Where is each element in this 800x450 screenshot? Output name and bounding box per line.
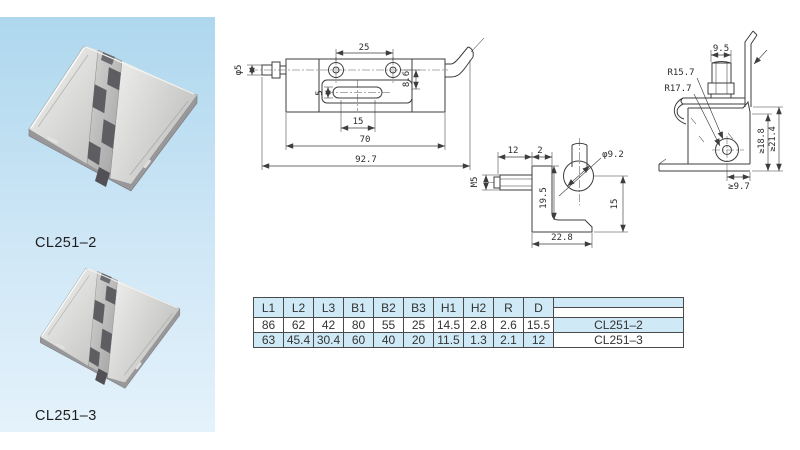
dim-overall-length: 92.7: [355, 155, 377, 165]
col-header-d: D: [524, 298, 554, 318]
dim-body-length: 70: [360, 135, 371, 145]
cell: 42: [314, 318, 344, 333]
cell: 1.3: [464, 333, 494, 348]
drawing-profile-view: 9.5 R15.7 R17.7 ≥18.8 ≥21.4 ≥9.7: [659, 31, 783, 192]
dim-offset: 8.6: [402, 71, 412, 87]
dim-slot-length: 15: [353, 117, 364, 127]
cell: 2.1: [494, 333, 524, 348]
cell: 62: [284, 318, 314, 333]
dim-pivot-height: 15: [610, 199, 620, 210]
drawing-bracket-view: φ9.2 M5 12 2 19.5 15: [470, 138, 628, 248]
catalog-page: CL251–2 CL251–3: [0, 0, 800, 450]
col-header-b2: B2: [374, 298, 404, 318]
col-header-h2: H2: [464, 298, 494, 318]
cell: 14.5: [434, 318, 464, 333]
dim-radius-inner: R15.7: [667, 68, 694, 78]
col-header-b3: B3: [404, 298, 434, 318]
dim-pin-length: 12: [508, 146, 519, 156]
col-header-l3: L3: [314, 298, 344, 318]
cell: 12: [524, 333, 554, 348]
model-cell-cl251-3: CL251–3: [554, 333, 684, 348]
cell: 60: [344, 333, 374, 348]
dim-hole-spacing: 25: [359, 43, 370, 53]
technical-drawings: 25 φ5 5 8.6 15 70: [0, 0, 800, 450]
model-header-top: [554, 298, 684, 308]
cell: 30.4: [314, 333, 344, 348]
cell: 11.5: [434, 333, 464, 348]
col-header-b1: B1: [344, 298, 374, 318]
cell: 40: [374, 333, 404, 348]
cell: 2.6: [494, 318, 524, 333]
dim-tab-width: 9.5: [713, 44, 729, 54]
dim-slot-height: 5: [315, 90, 325, 95]
cell: 80: [344, 318, 374, 333]
cell: 63: [254, 333, 284, 348]
model-cell-cl251-2: CL251–2: [554, 318, 684, 333]
dim-thread: M5: [470, 177, 480, 188]
col-header-l1: L1: [254, 298, 284, 318]
spec-table: L1 L2 L3 B1 B2 B3 H1 H2 R D 86 62 42 80 …: [253, 297, 684, 348]
model-header-bottom: [554, 308, 684, 318]
col-header-l2: L2: [284, 298, 314, 318]
cell: 20: [404, 333, 434, 348]
col-header-h1: H1: [434, 298, 464, 318]
cell: 86: [254, 318, 284, 333]
col-header-r: R: [494, 298, 524, 318]
dim-plate-thickness: 2: [537, 146, 542, 156]
dim-pin-dia: φ5: [234, 65, 244, 76]
dim-clearance: ≥9.7: [728, 182, 750, 192]
cell: 45.4: [284, 333, 314, 348]
cell: 15.5: [524, 318, 554, 333]
cell: 25: [404, 318, 434, 333]
dim-height: 19.5: [539, 187, 549, 209]
cell: 2.8: [464, 318, 494, 333]
cell: 55: [374, 318, 404, 333]
dim-hole-dia: φ9.2: [602, 150, 624, 160]
dim-depth-a: ≥18.8: [757, 128, 767, 154]
drawing-latch-side-view: 25 φ5 5 8.6 15 70: [234, 38, 484, 170]
dim-base-width: 22.8: [551, 233, 573, 243]
dim-depth-b: ≥21.4: [768, 126, 778, 152]
dim-radius-outer: R17.7: [664, 84, 691, 94]
